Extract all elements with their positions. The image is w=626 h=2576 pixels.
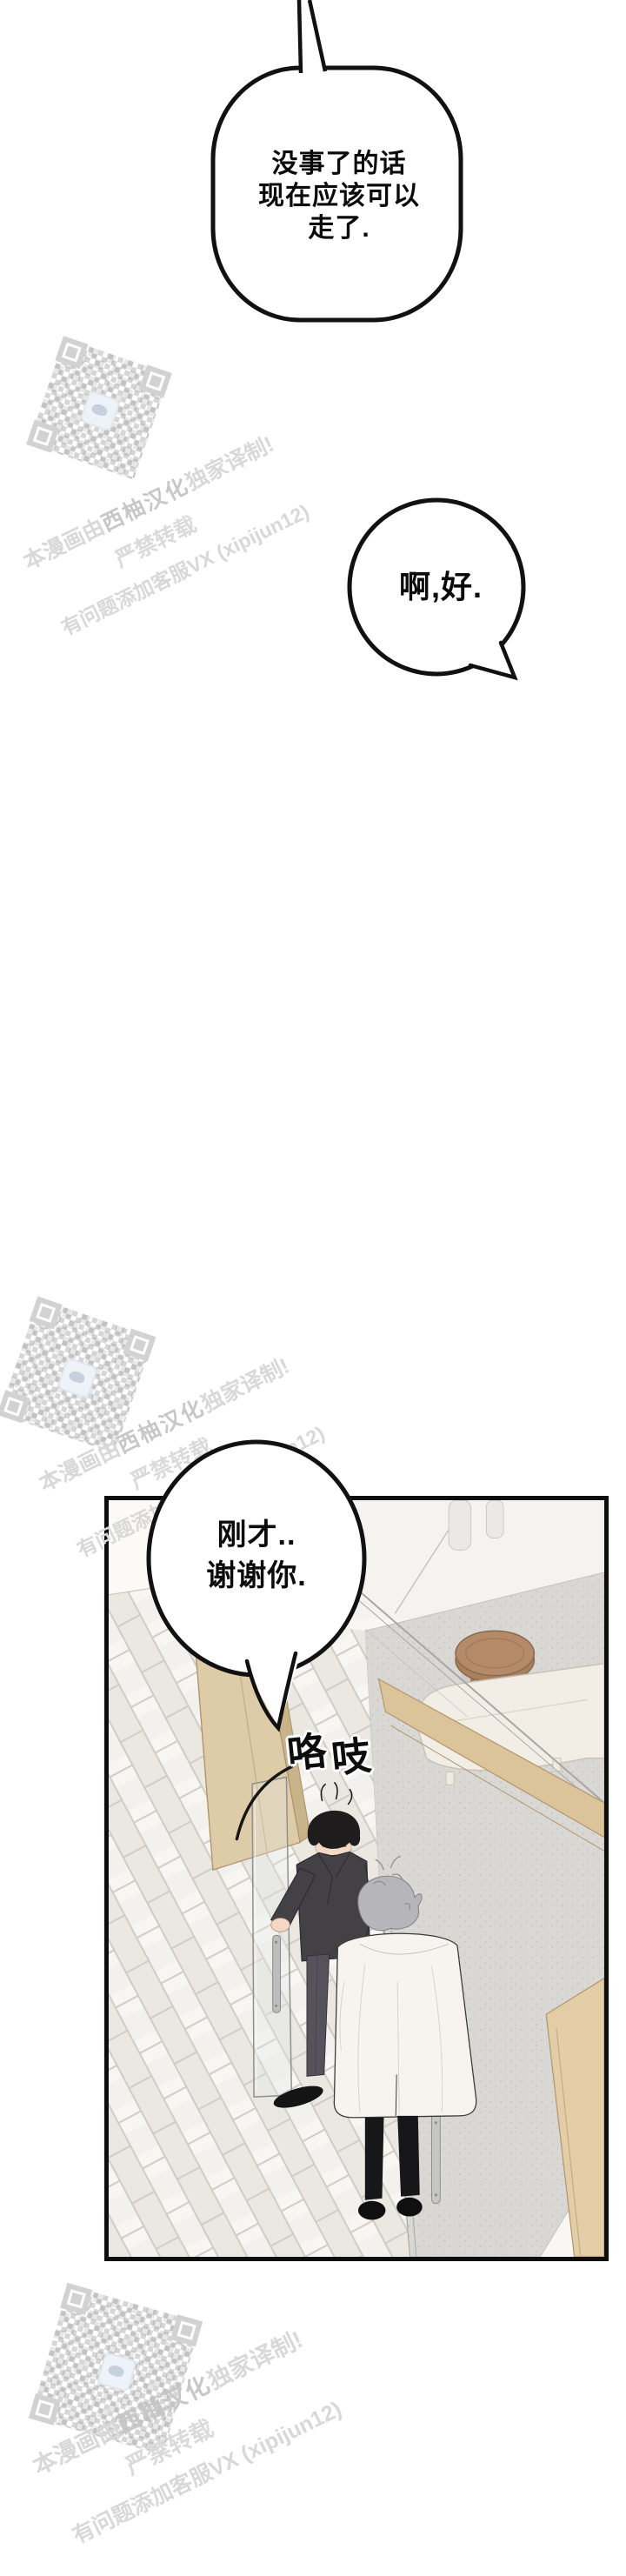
watermark-line-2: 严禁转载	[119, 2355, 330, 2481]
qr-logo	[57, 1357, 98, 1398]
qr-logo	[97, 2352, 137, 2392]
qr-code	[29, 338, 170, 480]
watermark-block-3: 本漫画由西柚汉化独家译制! 严禁转载 有问题添加客服VX (xipijun12)	[16, 2280, 311, 2576]
qr-finder-icon	[123, 1329, 156, 1362]
bubble-2-text: 啊,好.	[358, 569, 523, 605]
qr-logo	[79, 390, 121, 431]
bubble-3-line: 刚才..	[155, 1515, 358, 1556]
qr-finder-icon	[170, 2314, 203, 2346]
qr-finder-icon	[26, 420, 59, 453]
bubble-3-line: 谢谢你.	[155, 1556, 358, 1597]
glass-door	[252, 1777, 291, 2097]
qr-code	[0, 1298, 154, 1453]
watermark-line-3: 有问题添加客服VX (xipijun12)	[56, 495, 313, 641]
watermark-line-2: 严禁转载	[110, 461, 297, 574]
watermark-text: 本漫画由西柚汉化独家译制! 严禁转载 有问题添加客服VX (xipijun12)	[26, 2319, 346, 2553]
door-handle	[273, 1935, 281, 2012]
comic-page: 咯吱 本漫画由西柚汉化独家译制! 严禁转载 有问题添加客服VX (xipijun…	[0, 0, 626, 2576]
qr-finder-icon	[0, 1390, 30, 1423]
qr-finder-icon	[60, 2283, 92, 2315]
watermark-line-1: 本漫画由西柚汉化独家译制!	[26, 2319, 311, 2481]
watermark-line-1: 本漫画由西柚汉化独家译制!	[17, 426, 281, 576]
watermark-text: 本漫画由西柚汉化独家译制! 严禁转载 有问题添加客服VX (xipijun12)	[17, 426, 313, 644]
qr-finder-icon	[139, 364, 172, 397]
watermark-line-3: 有问题添加客服VX (xipijun12)	[67, 2392, 347, 2551]
qr-finder-icon	[30, 1296, 63, 1329]
sfx-char-2: 吱	[330, 1733, 373, 1781]
watermark-block-1: 本漫画由西柚汉化独家译制! 严禁转载 有问题添加客服VX (xipijun12)	[0, 341, 289, 741]
bubble-1-text: 没事了的话 现在应该可以 走了.	[213, 148, 465, 244]
qr-code	[30, 2285, 200, 2454]
bubble-1-line: 没事了的话	[213, 148, 465, 180]
bubble-3-text: 刚才.. 谢谢你.	[155, 1515, 358, 1597]
qr-finder-icon	[29, 2393, 61, 2426]
bubble-1-line: 走了.	[213, 212, 465, 244]
bubble-1-line: 现在应该可以	[213, 180, 465, 212]
qr-finder-icon	[55, 336, 88, 369]
